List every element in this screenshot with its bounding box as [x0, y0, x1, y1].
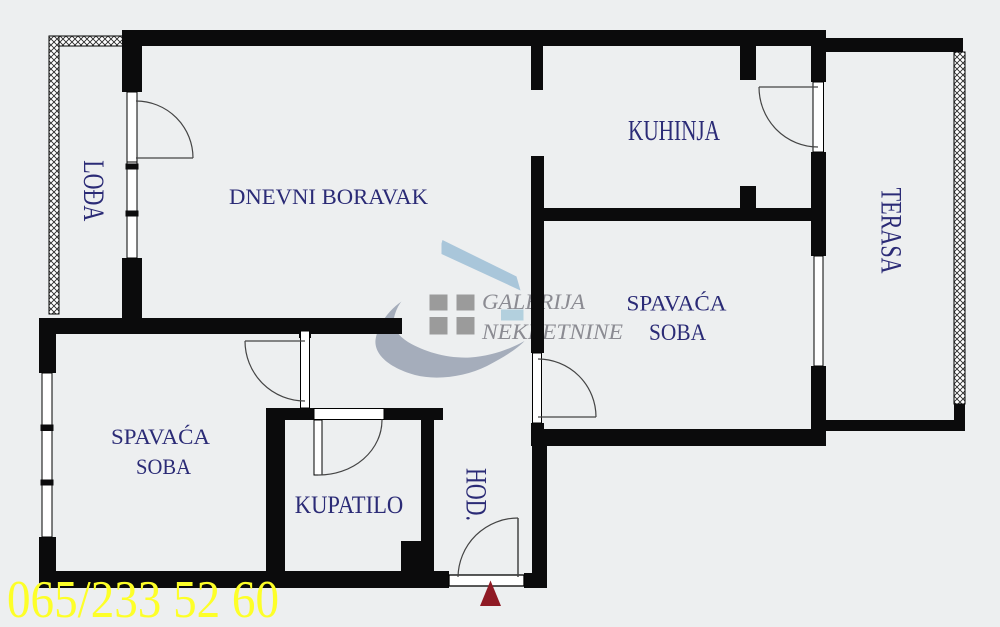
- svg-text:TERASA: TERASA: [875, 188, 908, 274]
- svg-text:LOĐA: LOĐA: [77, 160, 110, 221]
- svg-text:SOBA: SOBA: [649, 320, 706, 345]
- svg-text:SOBA: SOBA: [136, 454, 191, 479]
- svg-text:065/233 52 60: 065/233 52 60: [7, 571, 279, 627]
- svg-text:DNEVNI BORAVAK: DNEVNI BORAVAK: [229, 184, 428, 209]
- svg-text:SPAVAĆA: SPAVAĆA: [627, 291, 727, 316]
- svg-text:SPAVAĆA: SPAVAĆA: [111, 424, 210, 449]
- svg-text:KUPATILO: KUPATILO: [295, 492, 404, 519]
- svg-text:HOD.: HOD.: [460, 468, 493, 521]
- svg-text:NEKRETNINE: NEKRETNINE: [481, 319, 624, 344]
- svg-text:KUHINJA: KUHINJA: [628, 116, 721, 147]
